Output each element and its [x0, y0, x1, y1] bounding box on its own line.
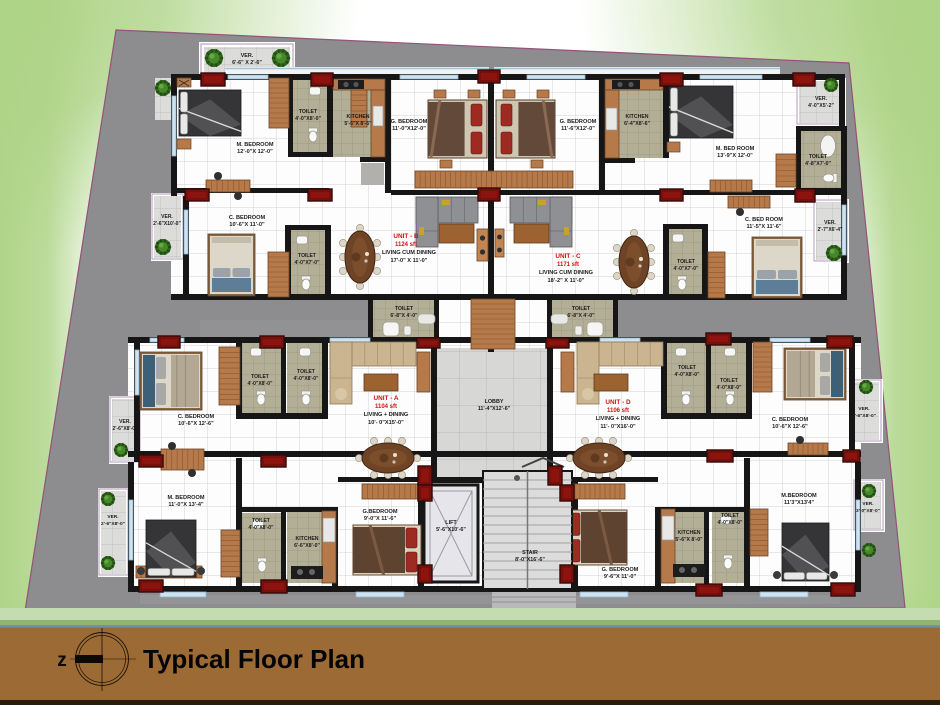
svg-text:VER.: VER.	[107, 514, 118, 520]
svg-text:11'-5"X 11'-6": 11'-5"X 11'-6"	[746, 224, 781, 230]
svg-text:KITCHEN: KITCHEN	[625, 114, 648, 120]
svg-text:10'-6"X 12'-6": 10'-6"X 12'-6"	[772, 424, 808, 430]
svg-text:5'-6"X 8'-0": 5'-6"X 8'-0"	[675, 537, 703, 543]
svg-text:LOBBY: LOBBY	[485, 399, 504, 405]
svg-text:4'-0"X7'-0": 4'-0"X7'-0"	[295, 260, 321, 266]
svg-text:VER.: VER.	[119, 419, 131, 425]
svg-text:TOILET: TOILET	[395, 306, 414, 312]
svg-text:4'-0"X8'-0": 4'-0"X8'-0"	[294, 376, 320, 382]
svg-text:KITCHEN: KITCHEN	[346, 114, 369, 120]
svg-text:18'-2" X 11'-0": 18'-2" X 11'-0"	[548, 278, 585, 284]
svg-text:6'-8"X 4'-0": 6'-8"X 4'-0"	[567, 313, 595, 319]
svg-text:4'-0"X7'-0": 4'-0"X7'-0"	[674, 266, 700, 272]
svg-text:G. BEDROOM: G. BEDROOM	[560, 119, 597, 125]
svg-text:6'-6" X 2'-6": 6'-6" X 2'-6"	[232, 60, 262, 66]
svg-text:M.BEDROOM: M.BEDROOM	[781, 493, 817, 499]
svg-text:TOILET: TOILET	[297, 369, 315, 375]
svg-text:Typical Floor Plan: Typical Floor Plan	[143, 644, 365, 674]
svg-text:2'-7"X6'-4": 2'-7"X6'-4"	[818, 227, 844, 233]
svg-text:1104 sft: 1104 sft	[375, 404, 397, 410]
svg-text:TOILET: TOILET	[721, 513, 739, 519]
svg-text:2'-6"X10'-0": 2'-6"X10'-0"	[153, 221, 181, 227]
svg-text:2'-6"X8'-0": 2'-6"X8'-0"	[113, 426, 139, 432]
svg-text:G. BEDROOM: G. BEDROOM	[391, 119, 428, 125]
svg-text:C. BEDROOM: C. BEDROOM	[229, 215, 266, 221]
svg-text:12'-0"X 12'-0": 12'-0"X 12'-0"	[237, 149, 273, 155]
svg-text:1171 sft: 1171 sft	[557, 262, 579, 268]
svg-text:5'-6"X10'-6": 5'-6"X10'-6"	[436, 527, 466, 533]
svg-text:VER.: VER.	[815, 96, 828, 102]
svg-text:M. BED ROOM: M. BED ROOM	[716, 146, 755, 152]
svg-text:4'-0"X8'-0": 4'-0"X8'-0"	[717, 385, 743, 391]
svg-text:2'-6"X8'-0": 2'-6"X8'-0"	[852, 413, 876, 419]
svg-text:VER.: VER.	[824, 220, 836, 226]
svg-text:10'-6"X 11'-0": 10'-6"X 11'-0"	[229, 222, 265, 228]
svg-text:9'-6"X 11'-0": 9'-6"X 11'-0"	[604, 574, 637, 580]
svg-text:10'-6"X 12'-6": 10'-6"X 12'-6"	[178, 421, 214, 427]
svg-text:UNIT - C: UNIT - C	[555, 253, 581, 260]
svg-text:LIVING + DINING: LIVING + DINING	[596, 416, 641, 422]
svg-text:1106 sft: 1106 sft	[607, 408, 629, 414]
svg-text:5'-6"X 8'-6": 5'-6"X 8'-6"	[344, 121, 372, 127]
svg-text:11'- 0"X16'-0": 11'- 0"X16'-0"	[600, 424, 636, 430]
svg-text:3'-0"X8'-0": 3'-0"X8'-0"	[856, 508, 880, 514]
svg-text:TOILET: TOILET	[720, 378, 738, 384]
svg-text:11'-6"X12'-0": 11'-6"X12'-0"	[561, 126, 595, 132]
svg-text:11'3"X13'4": 11'3"X13'4"	[784, 500, 814, 506]
svg-text:4'-0"X8'-0": 4'-0"X8'-0"	[675, 372, 701, 378]
svg-text:C. BEDROOM: C. BEDROOM	[178, 414, 215, 420]
svg-text:6'-4"X8'-6": 6'-4"X8'-6"	[624, 121, 650, 127]
svg-text:VER.: VER.	[241, 53, 254, 59]
svg-text:4'-0"X8'-0": 4'-0"X8'-0"	[248, 381, 274, 387]
svg-text:TOILET: TOILET	[299, 109, 318, 115]
svg-text:11'-0"X12'-0": 11'-0"X12'-0"	[392, 126, 426, 132]
svg-text:8'-0"X16'-6": 8'-0"X16'-6"	[515, 557, 545, 563]
svg-text:M. BEDROOM: M. BEDROOM	[168, 495, 205, 501]
svg-text:TOILET: TOILET	[809, 154, 828, 160]
svg-text:TOILET: TOILET	[252, 518, 270, 524]
svg-text:4'-8"X7'-0": 4'-8"X7'-0"	[805, 161, 831, 167]
svg-text:LIVING + DINING: LIVING + DINING	[364, 412, 409, 418]
svg-text:TOILET: TOILET	[572, 306, 591, 312]
svg-text:6'-8"X 4'-0": 6'-8"X 4'-0"	[390, 313, 418, 319]
svg-text:4'-0"X8'-0": 4'-0"X8'-0"	[249, 525, 275, 531]
svg-text:VER.: VER.	[161, 214, 173, 220]
svg-text:2'-6"X8'-0": 2'-6"X8'-0"	[101, 521, 125, 527]
svg-text:TOILET: TOILET	[251, 374, 269, 380]
svg-text:UNIT - D: UNIT - D	[605, 399, 631, 406]
svg-text:STAIR: STAIR	[522, 550, 538, 556]
svg-text:1124 sft: 1124 sft	[395, 242, 417, 248]
svg-text:KITCHEN: KITCHEN	[295, 536, 318, 542]
svg-text:LIVING CUM DINING: LIVING CUM DINING	[382, 250, 436, 256]
svg-text:UNIT - A: UNIT - A	[374, 395, 399, 402]
svg-text:LIFT: LIFT	[445, 520, 457, 526]
svg-text:4'-0"X5'-2": 4'-0"X5'-2"	[808, 103, 834, 109]
svg-text:G.BEDROOM: G.BEDROOM	[362, 509, 397, 515]
svg-text:G. BEDROOM: G. BEDROOM	[602, 567, 639, 573]
svg-text:VER.: VER.	[858, 406, 869, 412]
svg-text:9'-0"X 11'-6": 9'-0"X 11'-6"	[364, 516, 397, 522]
svg-text:KITCHEN: KITCHEN	[677, 530, 700, 536]
svg-text:LIVING CUM DINING: LIVING CUM DINING	[539, 270, 593, 276]
svg-text:TOILET: TOILET	[677, 259, 695, 265]
svg-text:C. BEDROOM: C. BEDROOM	[772, 417, 809, 423]
svg-text:TOILET: TOILET	[298, 253, 316, 259]
svg-text:VER.: VER.	[862, 501, 873, 507]
svg-text:C. BED ROOM: C. BED ROOM	[745, 217, 783, 223]
svg-text:11'-4"X12'-6": 11'-4"X12'-6"	[478, 406, 511, 412]
svg-text:13'-9"X 12'-0": 13'-9"X 12'-0"	[717, 153, 753, 159]
svg-text:z: z	[57, 650, 67, 671]
svg-text:17'-0" X 11'-0": 17'-0" X 11'-0"	[391, 258, 428, 264]
svg-text:TOILET: TOILET	[678, 365, 696, 371]
svg-text:10'- 0"X15'-0": 10'- 0"X15'-0"	[368, 420, 404, 426]
svg-text:4'-0"X8'-0": 4'-0"X8'-0"	[295, 116, 321, 122]
svg-text:6'-6"X8'-0": 6'-6"X8'-0"	[294, 543, 320, 549]
svg-text:M. BEDROOM: M. BEDROOM	[237, 142, 274, 148]
svg-text:4'-0"X8'-0": 4'-0"X8'-0"	[718, 520, 744, 526]
svg-text:11'-0"X 13'-4": 11'-0"X 13'-4"	[168, 502, 204, 508]
svg-text:UNIT - B: UNIT - B	[393, 233, 419, 240]
